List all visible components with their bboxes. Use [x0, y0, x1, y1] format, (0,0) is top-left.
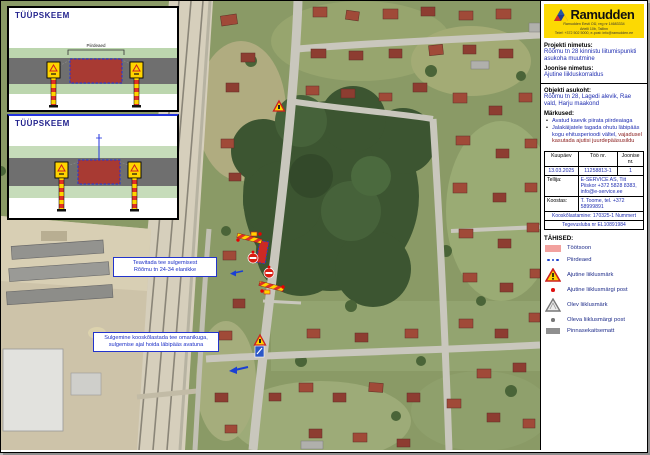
inset2-title: TÜÜPSKEEM [15, 119, 70, 128]
legend-title: TÄHISED: [544, 235, 644, 242]
date-header: Kuupäev [545, 151, 579, 166]
job-value: 11258813-1 [578, 166, 618, 175]
map-note-line: sulgemise ajal hoida läbipääs avatuna [96, 342, 216, 349]
title-block-table-section: Kuupäev Töö nr. Joonise nr. 13.03.2025 1… [541, 151, 647, 232]
brand-box: Ramudden Ramudden Eesti OÜ, reg nr 14683… [544, 4, 644, 38]
author-value: T. Toome, tel. +372 58999891 [578, 196, 643, 211]
bracket-label: Piirdeaed [86, 43, 106, 48]
temporary-sign-triangle-icon [544, 268, 562, 282]
ground-mat-swatch-icon [544, 328, 562, 334]
inset1-title: TÜÜPSKEEM [15, 11, 70, 20]
typical-scheme-2-diagram [9, 116, 177, 218]
gray-post-dot-icon [544, 318, 562, 322]
legend-item-existing-sign: Olev liiklusmärk [544, 298, 644, 312]
title-block-sidebar: Ramudden Ramudden Eesti OÜ, reg nr 14683… [540, 1, 647, 450]
map-note-line: Sulgemine kooskõlastada tee omanikuga, [96, 335, 216, 342]
legend-item-fence: Piirdeaed [544, 257, 644, 263]
brand-contact-line: Telef: +372 502 5000, e-post: info@ramud… [546, 31, 642, 36]
permit-line: Tegevusluba nr EL10891984 [544, 221, 644, 230]
legend: TÄHISED: Töötsoon Piirdeaed Ajutin [541, 232, 647, 342]
workzone-swatch-icon [544, 245, 562, 252]
workzone-rect [70, 59, 122, 83]
map-note-line: Rõõmu tn 24-34 elanikke [116, 267, 214, 274]
job-header: Töö nr. [578, 151, 618, 166]
brand-name: Ramudden [571, 7, 635, 22]
author-label: Koostas: [545, 196, 579, 211]
typical-scheme-panel-2: TÜÜPSKEEM [7, 114, 179, 220]
map-note-line: Teavitada tee sulgemisest [116, 260, 214, 267]
legend-item-ground-mat: Pinnasekaitsematt [544, 328, 644, 334]
note-item: Jalakäijatele tagada ohutu läbipääs kogu… [552, 125, 644, 145]
existing-sign-triangle-icon [544, 298, 562, 312]
date-value: 13.03.2025 [545, 166, 579, 175]
client-label: Tellija: [545, 175, 579, 196]
drawing-no-value: 1 [618, 166, 644, 175]
location-value: Rõõmu tn 28, Lagedi alevik, Rae vald, Ha… [544, 94, 644, 108]
notes-label: Märkused: [544, 111, 644, 117]
traffic-management-plan-sheet: Piirdeaed TÜÜPSKEEM [0, 0, 648, 453]
project-section: Projekti nimetus: Rõõmu tn 28 kinnistu l… [541, 41, 647, 81]
legend-item-existing-post: Oleva liiklusmärgi post [544, 317, 644, 323]
ramudden-logo-icon [554, 9, 568, 21]
title-block-table: Kuupäev Töö nr. Joonise nr. 13.03.2025 1… [544, 151, 644, 212]
legend-item-temporary-sign: Ajutine liiklusmärk [544, 268, 644, 282]
drawing-value: Ajutine liikluskorraldus [544, 72, 644, 79]
workzone-rect [78, 160, 120, 184]
fence-dots-icon [544, 259, 562, 262]
approval-line: Kooskõlastamine: 170325-1 Nummert [544, 212, 644, 221]
map-note-closure: Sulgemine kooskõlastada tee omanikuga, s… [93, 332, 219, 352]
no-entry-sign-lower [264, 268, 274, 278]
no-entry-sign-upper [248, 253, 258, 263]
client-value: E-SERVICE AS, Tiit Piiskor +372 5828 838… [578, 175, 643, 196]
project-value: Rõõmu tn 28 kinnistu liitumispunkti asuk… [544, 49, 644, 63]
note-item: Avatud kaevik piirata piirdeaiaga [552, 118, 644, 125]
notes-list: Avatud kaevik piirata piirdeaiaga Jalakä… [544, 118, 644, 145]
map-note-residents: Teavitada tee sulgemisest Rõõmu tn 24-34… [113, 257, 217, 277]
location-section: Objekti asukoht: Rõõmu tn 28, Lagedi ale… [541, 86, 647, 149]
drawing-no-header: Joonise nr. [618, 151, 644, 166]
divider [541, 83, 647, 84]
legend-item-temporary-post: Ajutine liiklusmärgi post [544, 287, 644, 293]
red-post-dot-icon [544, 288, 562, 292]
legend-item-workzone: Töötsoon [544, 245, 644, 252]
typical-scheme-panel-1: Piirdeaed TÜÜPSKEEM [7, 6, 179, 112]
typical-scheme-1-diagram: Piirdeaed [9, 8, 177, 110]
